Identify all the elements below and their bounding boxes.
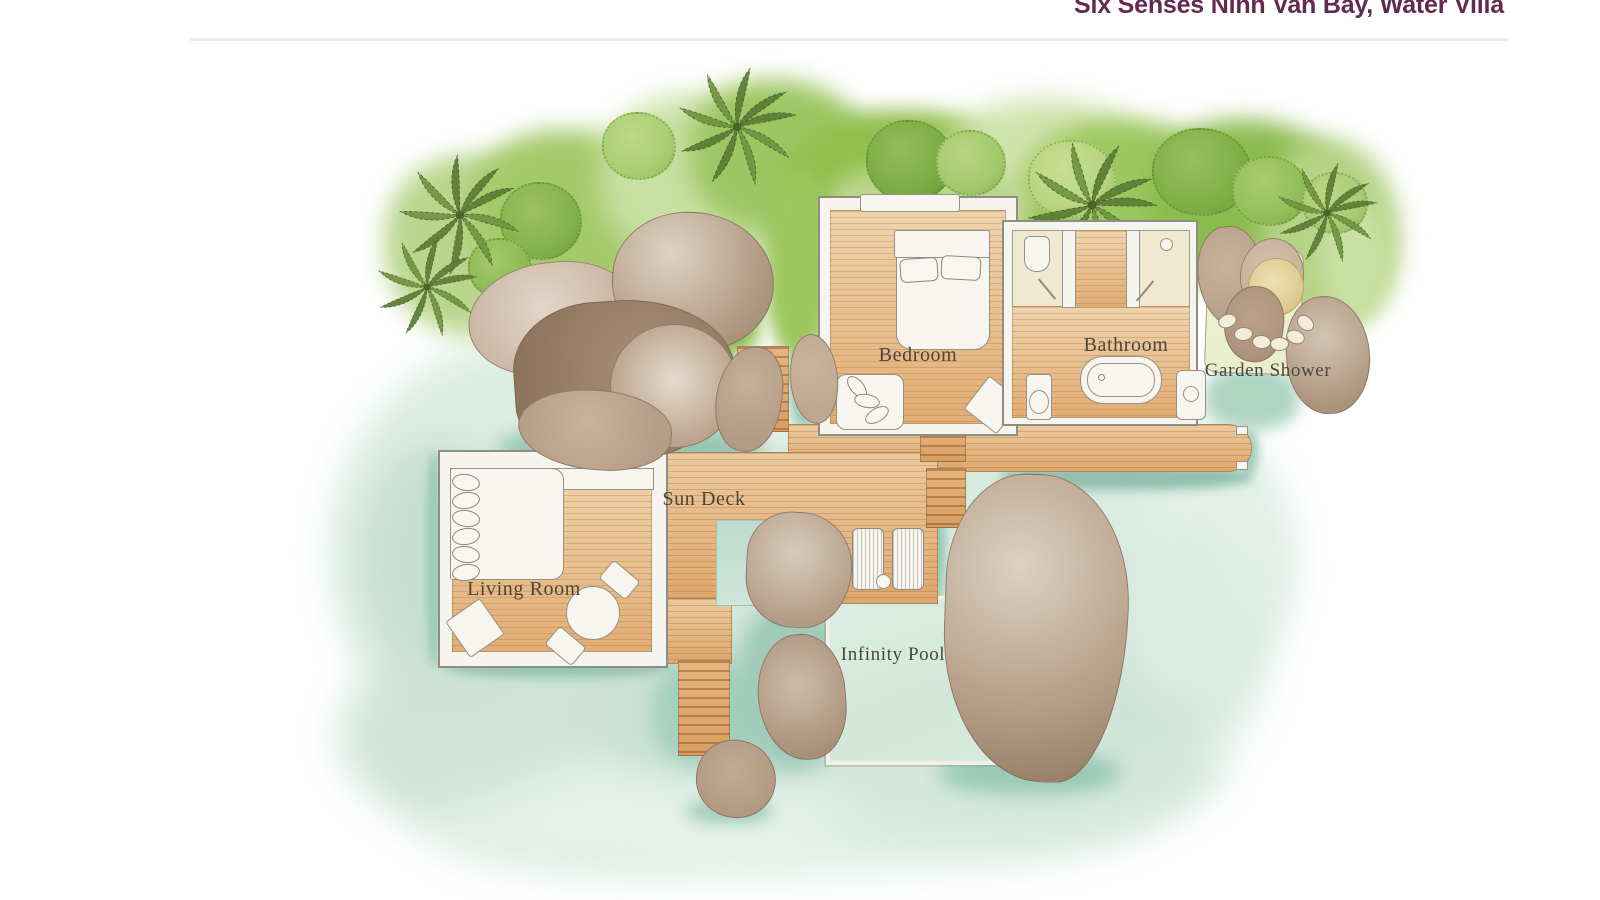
bush-icon (936, 130, 1006, 196)
walkway-end-bumper (1236, 461, 1248, 470)
palm-tree-icon (672, 62, 802, 192)
living-room (438, 450, 668, 668)
basin-bowl (1183, 386, 1199, 402)
page-divider-line (190, 38, 1508, 41)
bedroom-label: Bedroom (858, 344, 978, 367)
floor-plan-canvas: Six Senses Ninh Van Bay, Water Villa (0, 0, 1600, 900)
bathroom-label: Bathroom (1060, 334, 1192, 357)
page-title: Six Senses Ninh Van Bay, Water Villa (1074, 0, 1504, 20)
garden-shower-label: Garden Shower (1196, 360, 1340, 382)
infinity-pool-label: Infinity Pool (834, 644, 952, 666)
toilet (1024, 236, 1050, 272)
bush-icon (602, 112, 676, 180)
bed-pillow (899, 257, 939, 284)
sun-deck-label: Sun Deck (648, 488, 760, 511)
headboard (894, 230, 990, 258)
headboard-bench (860, 194, 960, 212)
bed-pillow (940, 255, 981, 281)
sun-lounger (892, 528, 924, 590)
bathroom-room (1002, 220, 1198, 426)
water-wash (1120, 520, 1250, 700)
shower-head (1160, 238, 1173, 251)
bedroom-room (818, 196, 1018, 436)
palm-tree-icon (372, 232, 482, 342)
side-table (876, 574, 891, 589)
bathroom-middle-floor (1074, 230, 1128, 308)
bathtub-drain (1098, 374, 1105, 381)
deck-sun-lower (664, 598, 732, 664)
sink-bowl (1029, 390, 1049, 414)
water-wash (430, 780, 850, 870)
living-room-label: Living Room (466, 578, 582, 601)
bathtub-inner (1087, 363, 1155, 397)
walkway-end-bumper (1236, 426, 1248, 435)
partition-wall (1062, 230, 1076, 308)
